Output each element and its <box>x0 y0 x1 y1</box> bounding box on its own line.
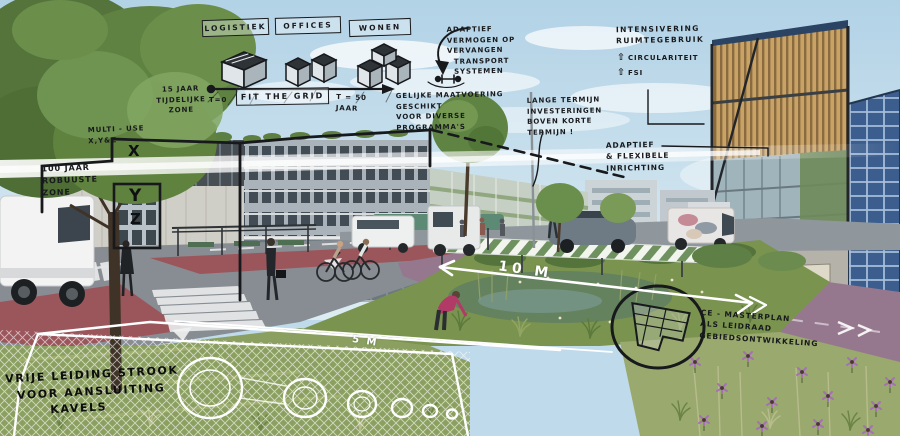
note-circulariteit: ⇧ CIRCULARITEIT <box>617 51 698 65</box>
building-mark-x: X <box>128 142 140 160</box>
note-adaptief-vermogen: ADAPTIEF VERMOGEN OP VERVANGEN TRANSPORT… <box>447 23 552 77</box>
timeline-t0-label: T=0 <box>209 95 227 106</box>
legend-box-logistiek: LOGISTIEK <box>202 18 270 37</box>
building-mark-z: Z <box>130 210 141 228</box>
circulariteit-label: CIRCULARITEIT <box>628 53 698 64</box>
up-arrow-icon: ⇧ <box>617 66 625 80</box>
fit-the-grid-box: FIT THE GRID <box>236 87 329 106</box>
note-multi-use: MULTI - USE X,Y&Z <box>88 123 159 146</box>
note-intensivering: INTENSIVERING RUIMTEGEBRUIK <box>616 22 758 47</box>
legend-box-wonen: WONEN <box>349 18 412 37</box>
van-center <box>352 216 414 253</box>
timeline-t50-label: T = 50 JAAR <box>336 92 391 115</box>
masterplan-annotated-visual: LOGISTIEK OFFICES WONEN 15 JAAR TIJDELIJ… <box>0 0 900 436</box>
note-tijdelijke-zone: 15 JAAR TIJDELIJKE ZONE <box>149 83 212 117</box>
note-lange-termijn: LANGE TERMIJN INVESTERINGEN BOVEN KORTE … <box>527 94 622 138</box>
note-fsi: ⇧ FSI <box>617 66 643 80</box>
legend-box-offices: OFFICES <box>275 16 341 35</box>
truck-cab-center <box>428 206 480 256</box>
up-arrow-icon: ⇧ <box>617 51 625 65</box>
note-adaptief-flexibel: ADAPTIEF & FLEXIBELE INRICHTING <box>606 138 705 173</box>
building-mark-y: Y <box>129 186 141 206</box>
fsi-label: FSI <box>628 68 643 79</box>
note-robuuste-zone: 100 JAAR ROBUUSTE ZONE <box>41 161 128 200</box>
note-gelijke-maatvoering: GELIJKE MAATVOERING GESCHIKT VOOR DIVERS… <box>396 89 519 133</box>
